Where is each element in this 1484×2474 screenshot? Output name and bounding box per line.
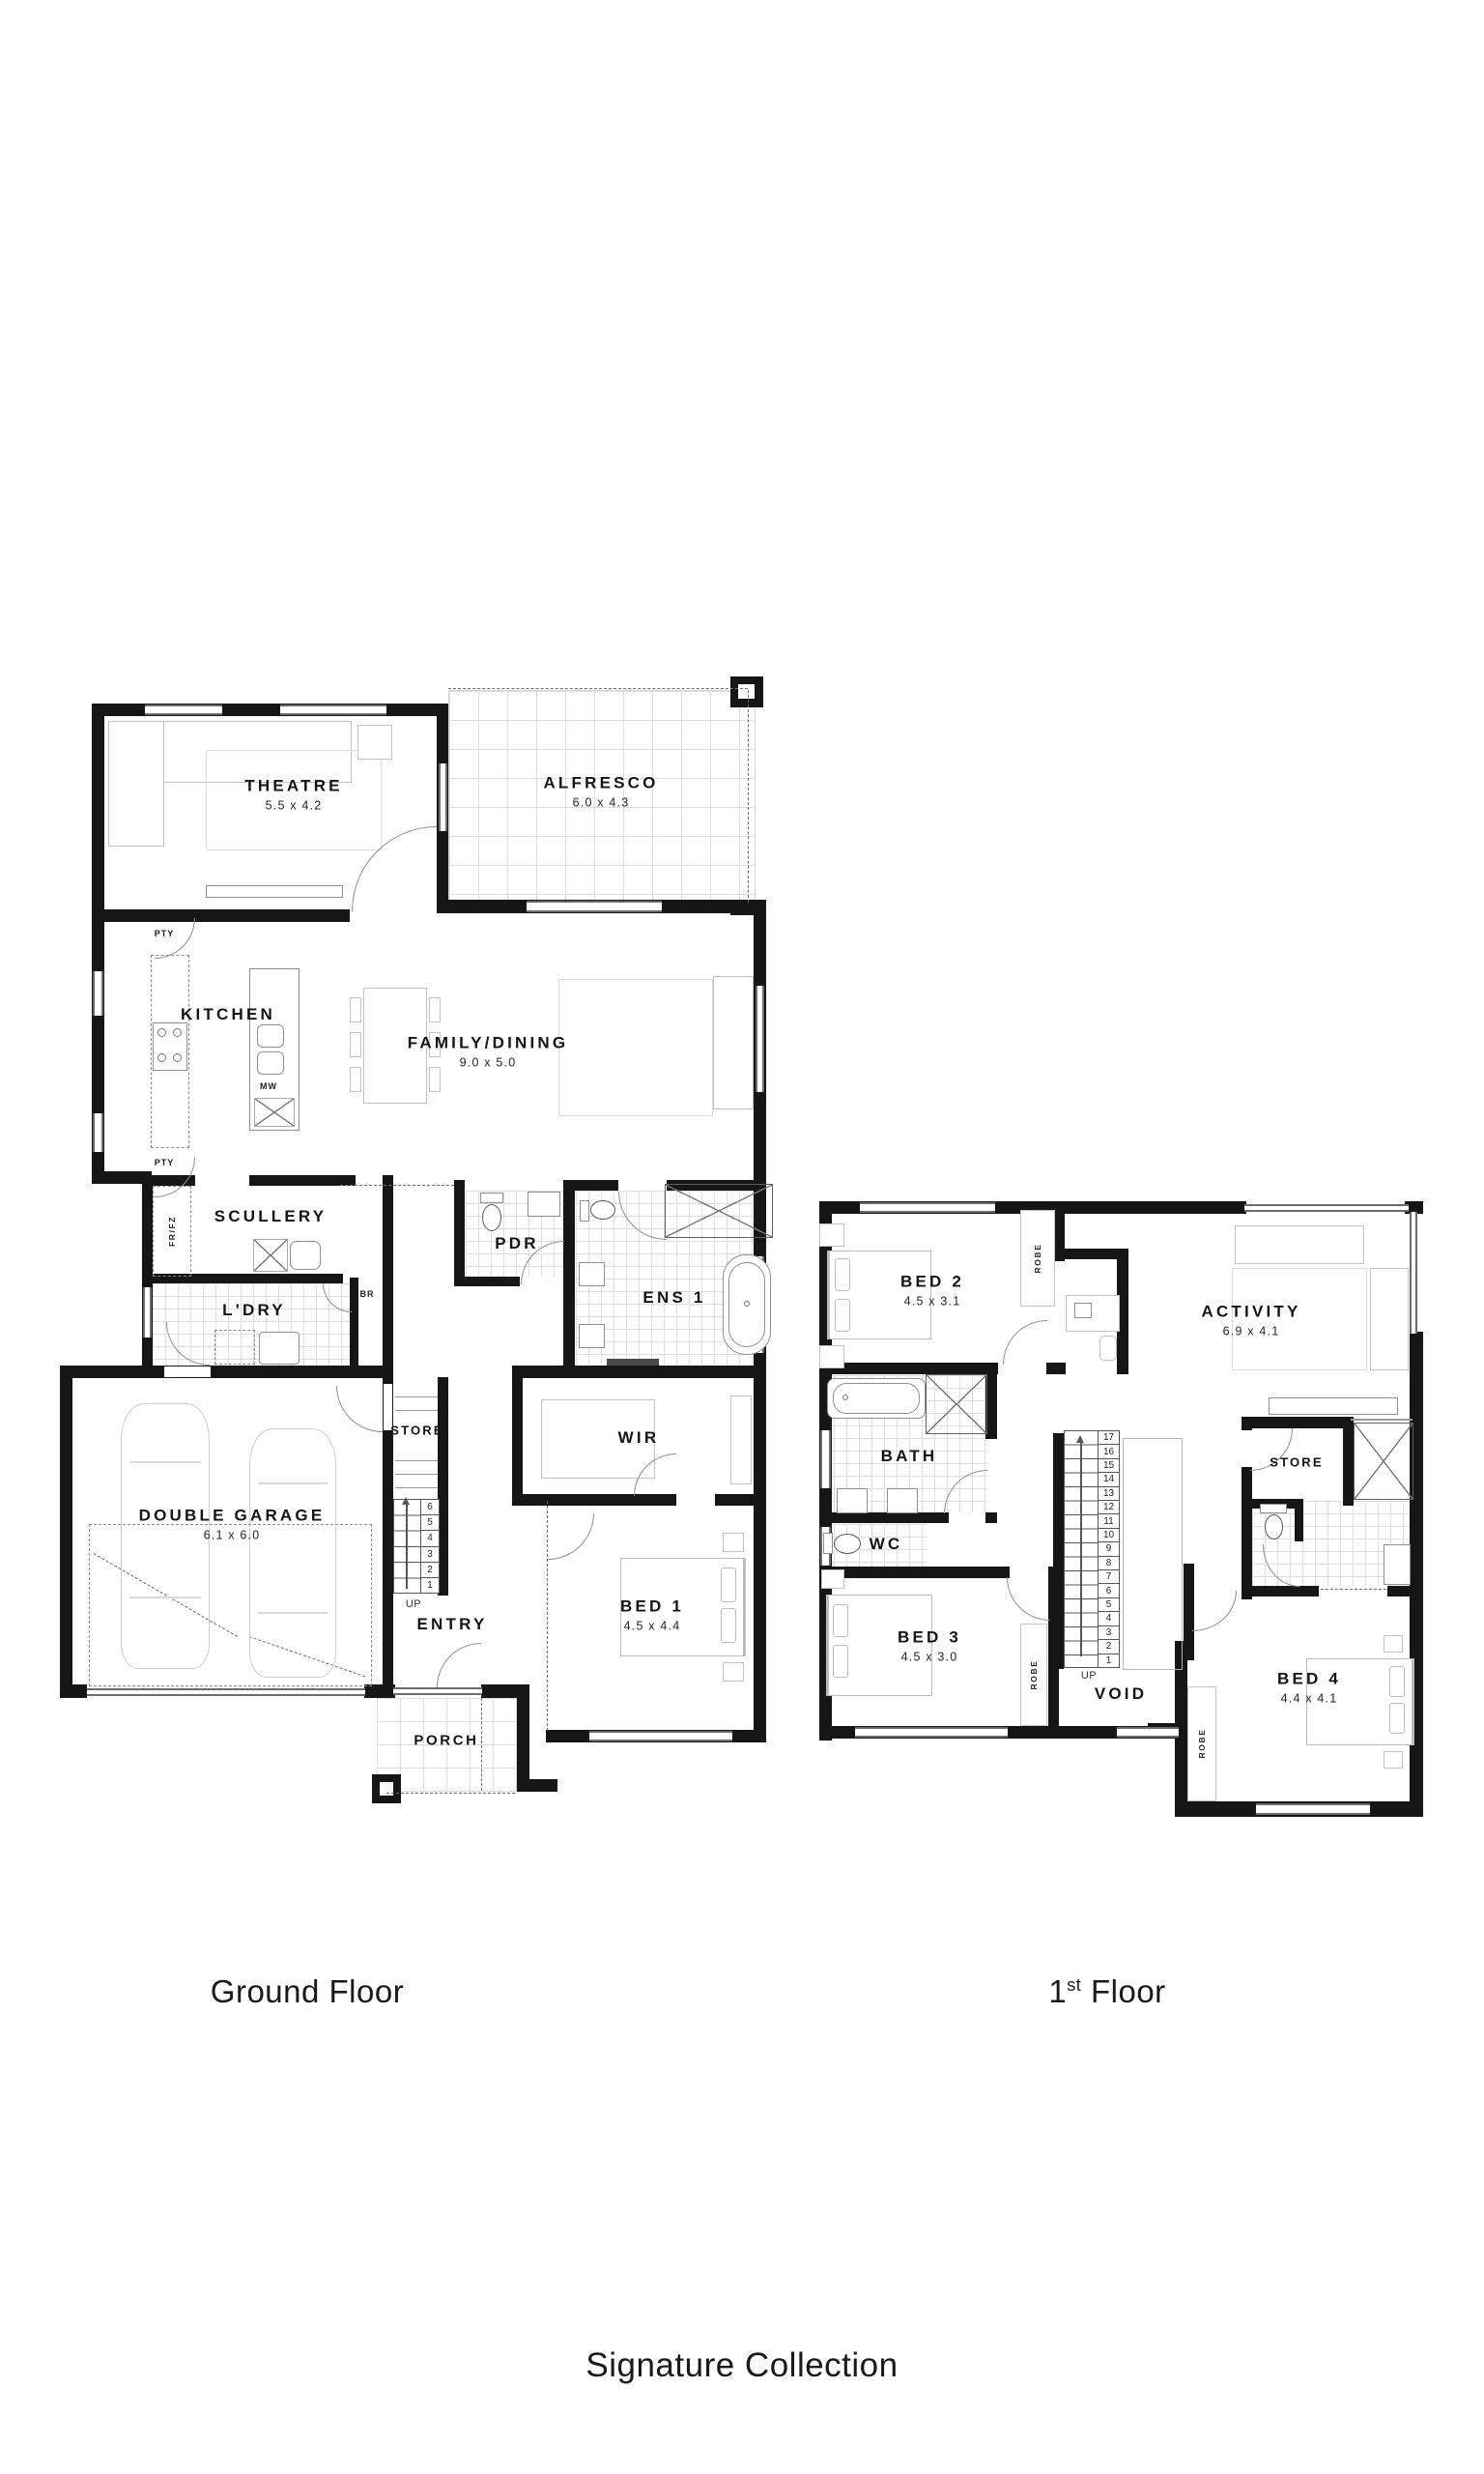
pdr-cistern — [480, 1193, 503, 1203]
wall — [512, 1366, 765, 1378]
pillow — [833, 1645, 848, 1678]
pillow — [835, 1299, 850, 1332]
room-label-bed1: BED 1 4.5 x 4.4 — [620, 1597, 684, 1633]
door-gap — [164, 1366, 211, 1377]
stair-number: 14 — [1099, 1473, 1119, 1486]
room-label-porch: PORCH — [414, 1733, 478, 1749]
room-label-theatre: THEATRE 5.5 x 4.2 — [244, 777, 342, 813]
dining-chair — [429, 1067, 441, 1092]
stair-number: 13 — [1099, 1487, 1119, 1501]
room-name: ACTIVITY — [1201, 1303, 1300, 1322]
side-table — [821, 1569, 844, 1589]
room-label-wc: WC — [870, 1535, 903, 1554]
wall — [92, 704, 104, 1184]
activity-sofa — [1235, 1225, 1364, 1264]
wall — [819, 1567, 1010, 1578]
room-name: VOID — [1095, 1684, 1147, 1704]
door-arc — [548, 1513, 594, 1560]
car-windshield — [129, 1461, 201, 1463]
room-label-store-ff: STORE — [1270, 1455, 1324, 1470]
void-balustrade — [1123, 1438, 1183, 1670]
room-name: ENS 1 — [642, 1288, 705, 1308]
hall-dashed — [340, 1185, 454, 1186]
wall — [819, 1512, 949, 1523]
ground-floor-stair-numbers: 654321 — [421, 1499, 440, 1594]
collection-caption: Signature Collection — [585, 2346, 898, 2385]
first-floor-caption-word: Floor — [1081, 1973, 1165, 2009]
window — [143, 1287, 152, 1338]
store-shelves — [395, 1384, 438, 1419]
wc-toilet-bowl — [834, 1534, 861, 1554]
porch-dashed — [386, 1793, 515, 1794]
wir-shelving — [730, 1395, 752, 1484]
theatre-tv-unit — [206, 885, 343, 898]
side-table — [723, 1662, 744, 1682]
porch-dashed — [481, 1698, 482, 1791]
room-dims: 6.9 x 4.1 — [1201, 1325, 1300, 1338]
ens1-bath-drain — [744, 1301, 750, 1307]
door-arc — [437, 1643, 481, 1687]
window — [860, 1202, 995, 1213]
window — [589, 1731, 732, 1741]
stair-number: 1 — [421, 1578, 439, 1593]
bath-vanity-basin — [837, 1488, 868, 1513]
window — [1256, 1803, 1370, 1815]
door-arc — [336, 1386, 383, 1432]
stairs-up-arrowhead — [402, 1497, 410, 1505]
stair-number: 12 — [1099, 1501, 1119, 1514]
laundry-bench — [214, 1330, 255, 1365]
garage-door-panel — [87, 1688, 365, 1696]
stair-number: 11 — [1099, 1514, 1119, 1528]
door-arc — [1192, 1591, 1237, 1631]
window — [1410, 1212, 1417, 1334]
wall — [92, 909, 350, 922]
dining-chair — [350, 997, 361, 1022]
stair-number: 15 — [1099, 1459, 1119, 1473]
burner — [157, 1053, 166, 1062]
wall — [454, 1277, 520, 1286]
side-table — [819, 1345, 844, 1368]
room-name: L'DRY — [222, 1301, 286, 1320]
wall — [1241, 1417, 1350, 1428]
shower-glass-line — [1351, 1419, 1413, 1421]
wall — [1053, 1249, 1123, 1259]
room-name: WC — [870, 1535, 903, 1554]
window — [1244, 1204, 1409, 1212]
stair-number: 6 — [421, 1500, 439, 1515]
stair-number: 2 — [1099, 1640, 1119, 1654]
room-label-wir: WIR — [618, 1428, 660, 1448]
wall — [60, 1684, 87, 1698]
car — [249, 1428, 336, 1678]
window — [439, 763, 447, 831]
room-label-activity: ACTIVITY 6.9 x 4.1 — [1201, 1303, 1300, 1338]
side-table — [357, 725, 392, 760]
stairs-up-label: UP — [406, 1598, 421, 1610]
window — [280, 705, 386, 715]
window — [145, 705, 222, 715]
ens1-bench — [607, 1359, 659, 1366]
room-name: BATH — [881, 1447, 938, 1466]
wall — [512, 1366, 523, 1501]
stair-number: 6 — [1099, 1584, 1119, 1597]
stairs-up-arrow — [406, 1504, 408, 1589]
stair-number: 3 — [421, 1547, 439, 1563]
wall — [517, 1684, 529, 1791]
room-label-bed2: BED 2 4.5 x 3.1 — [900, 1273, 964, 1309]
floorplan-canvas: 654321 THEATRE 5.5 x 4.2 ALFRESCO 6.0 x … — [0, 0, 1484, 2474]
wall — [563, 1180, 575, 1373]
island-hatch — [254, 1098, 295, 1127]
island-sink — [257, 1051, 284, 1075]
car-windshield — [258, 1482, 328, 1484]
stair-number: 5 — [1099, 1598, 1119, 1612]
room-label-pdr: PDR — [495, 1234, 539, 1253]
side-table — [819, 1223, 844, 1247]
burner — [157, 1028, 166, 1037]
stair-number: 17 — [1099, 1431, 1119, 1445]
wall — [1295, 1499, 1303, 1541]
room-label-store-gf: STORE — [390, 1424, 444, 1438]
door-arc — [1003, 1320, 1047, 1365]
wall — [1241, 1586, 1319, 1597]
wall — [517, 1779, 557, 1792]
alfresco-post-inner — [738, 684, 755, 699]
wall — [563, 1180, 618, 1191]
activity-side-unit — [1370, 1268, 1409, 1370]
ens2-door-dashed — [1321, 1589, 1386, 1590]
door-arc — [155, 918, 195, 959]
activity-tv-unit — [1269, 1397, 1398, 1415]
alfresco-edge-dashed — [448, 688, 748, 689]
ens2-toilet-bowl — [1265, 1514, 1283, 1539]
window — [93, 1113, 103, 1152]
bath-shower — [926, 1374, 987, 1434]
wc-cistern — [823, 1533, 833, 1554]
fridge-label: FR/FZ — [167, 1216, 177, 1247]
ground-floor-caption-text: Ground Floor — [211, 1973, 404, 2009]
robe-label: ROBE — [1197, 1729, 1207, 1759]
room-name: KITCHEN — [181, 1005, 275, 1024]
room-name: THEATRE — [244, 777, 342, 796]
burner — [173, 1053, 182, 1062]
stair-number: 5 — [421, 1515, 439, 1531]
dining-chair — [350, 1067, 361, 1092]
room-dims: 5.5 x 4.2 — [244, 799, 342, 813]
stairs-up-arrowhead — [1076, 1435, 1084, 1443]
pillow — [835, 1258, 850, 1291]
wall — [60, 1366, 393, 1378]
bath-vanity-basin — [887, 1488, 918, 1513]
room-name: PORCH — [414, 1733, 478, 1749]
room-dims: 9.0 x 5.0 — [408, 1056, 569, 1070]
room-label-bed4: BED 4 4.4 x 4.1 — [1277, 1670, 1341, 1706]
room-name: PDR — [495, 1234, 539, 1253]
stair-number: 16 — [1099, 1445, 1119, 1458]
wall — [1343, 1417, 1354, 1506]
ens2-vanity — [1384, 1544, 1411, 1585]
room-label-void: VOID — [1095, 1684, 1147, 1704]
room-label-bath: BATH — [881, 1447, 938, 1466]
stair-number: 4 — [421, 1531, 439, 1546]
island-sink — [257, 1024, 284, 1048]
pdr-toilet-bowl — [482, 1204, 501, 1231]
room-label-entry: ENTRY — [417, 1615, 488, 1634]
room-name: BED 1 — [620, 1597, 684, 1617]
room-name: BED 4 — [1277, 1670, 1341, 1689]
alfresco-edge-dashed — [748, 690, 749, 903]
robe-label: ROBE — [1029, 1660, 1039, 1690]
collection-caption-text: Signature Collection — [585, 2346, 898, 2384]
ens2-shower — [1354, 1423, 1413, 1500]
pillow — [833, 1604, 848, 1637]
stairs-up-arrow — [1080, 1442, 1082, 1656]
wall — [372, 1684, 395, 1698]
scullery-sink — [290, 1241, 321, 1270]
robe-label: ROBE — [1033, 1244, 1042, 1274]
desk-chair — [1099, 1336, 1117, 1361]
wall — [819, 1363, 998, 1374]
side-table — [1384, 1635, 1403, 1653]
ens1-vanity-basin — [579, 1262, 605, 1286]
room-label-garage: DOUBLE GARAGE 6.1 x 6.0 — [139, 1507, 326, 1542]
stair-number: 7 — [1099, 1570, 1119, 1584]
room-label-scullery: SCULLERY — [214, 1207, 328, 1226]
stair-number: 8 — [1099, 1557, 1119, 1570]
stair-number: 9 — [1099, 1542, 1119, 1556]
first-floor-caption: 1st Floor — [1048, 1973, 1165, 2010]
family-rug — [558, 979, 713, 1116]
room-name: WIR — [618, 1428, 660, 1448]
room-name: STORE — [1270, 1455, 1324, 1470]
pillow — [1389, 1703, 1405, 1734]
first-floor-caption-num: 1 — [1048, 1973, 1067, 2009]
pillow — [721, 1568, 736, 1602]
first-floor-stair-numbers: 1716151413121110987654321 — [1099, 1430, 1120, 1668]
stair-number: 2 — [421, 1563, 439, 1578]
pillow — [1389, 1666, 1405, 1697]
pdr-basin — [528, 1192, 560, 1217]
room-name: DOUBLE GARAGE — [139, 1507, 326, 1526]
microwave-label: MW — [259, 1081, 278, 1091]
window — [756, 986, 764, 1092]
room-name: FAMILY/DINING — [408, 1034, 569, 1053]
first-floor-caption-sup: st — [1067, 1975, 1081, 1995]
scullery-bench-hatch — [253, 1239, 288, 1272]
room-name: BED 3 — [898, 1628, 961, 1648]
ens1-cistern — [580, 1200, 589, 1222]
ens1-shower — [665, 1184, 773, 1238]
room-dims: 4.5 x 4.4 — [620, 1620, 684, 1633]
room-label-laundry: L'DRY — [222, 1301, 286, 1320]
ens1-toilet-bowl — [590, 1200, 615, 1220]
room-label-family-dining: FAMILY/DINING 9.0 x 5.0 — [408, 1034, 569, 1070]
window — [820, 1430, 831, 1488]
side-table — [1384, 1751, 1403, 1769]
store-shelves — [395, 1448, 438, 1494]
room-label-alfresco: ALFRESCO 6.0 x 4.3 — [543, 774, 658, 810]
stairs-up-label: UP — [1081, 1670, 1097, 1682]
stair-number: 1 — [1099, 1654, 1119, 1667]
room-name: ALFRESCO — [543, 774, 658, 793]
ens2-cistern — [1260, 1504, 1287, 1513]
stair-number: 3 — [1099, 1626, 1119, 1640]
pantry-label: PTY — [154, 1158, 176, 1167]
window — [93, 971, 103, 1016]
wall — [715, 1494, 765, 1506]
pantry-label: PTY — [154, 929, 176, 938]
room-dims: 4.5 x 3.0 — [898, 1651, 961, 1664]
room-label-kitchen: KITCHEN — [181, 1005, 275, 1024]
room-name: STORE — [390, 1424, 444, 1438]
room-name: ENTRY — [417, 1615, 488, 1634]
room-dims: 6.0 x 4.3 — [543, 796, 658, 810]
wall — [985, 1512, 997, 1523]
wall — [454, 1180, 465, 1286]
car-rear-line — [129, 1597, 201, 1598]
desk-computer — [1074, 1303, 1092, 1318]
bath-drain — [842, 1395, 848, 1400]
stair-number: 10 — [1099, 1529, 1119, 1542]
stairs-ground — [393, 1499, 421, 1594]
car-rear-line — [258, 1612, 328, 1614]
room-name: SCULLERY — [214, 1207, 328, 1226]
dining-chair — [350, 1032, 361, 1057]
wall — [1046, 1363, 1066, 1374]
stair-number: 4 — [1099, 1612, 1119, 1625]
ens1-vanity-basin — [579, 1324, 605, 1348]
wall — [60, 1366, 72, 1698]
wall — [1241, 1467, 1252, 1599]
room-label-ens1: ENS 1 — [642, 1288, 705, 1308]
door-arc — [1007, 1577, 1050, 1621]
window — [527, 901, 662, 912]
room-label-bed3: BED 3 4.5 x 3.0 — [898, 1628, 961, 1664]
entry-door-threshold — [393, 1687, 482, 1695]
wall — [383, 1175, 393, 1378]
room-name: BED 2 — [900, 1273, 964, 1292]
room-dims: 4.5 x 3.1 — [900, 1295, 964, 1309]
room-dims: 6.1 x 6.0 — [139, 1529, 326, 1542]
side-table — [723, 1533, 744, 1552]
broom-label: BR — [359, 1289, 376, 1299]
ground-floor-caption: Ground Floor — [211, 1973, 404, 2010]
pillow — [721, 1608, 736, 1643]
dining-chair — [429, 997, 441, 1022]
laundry-tub — [259, 1332, 300, 1365]
window — [855, 1727, 1008, 1738]
family-sofa — [713, 976, 754, 1109]
window — [1117, 1727, 1179, 1738]
theatre-sofa-return — [108, 721, 164, 847]
room-dims: 4.4 x 4.1 — [1277, 1692, 1341, 1706]
burner — [173, 1028, 182, 1037]
